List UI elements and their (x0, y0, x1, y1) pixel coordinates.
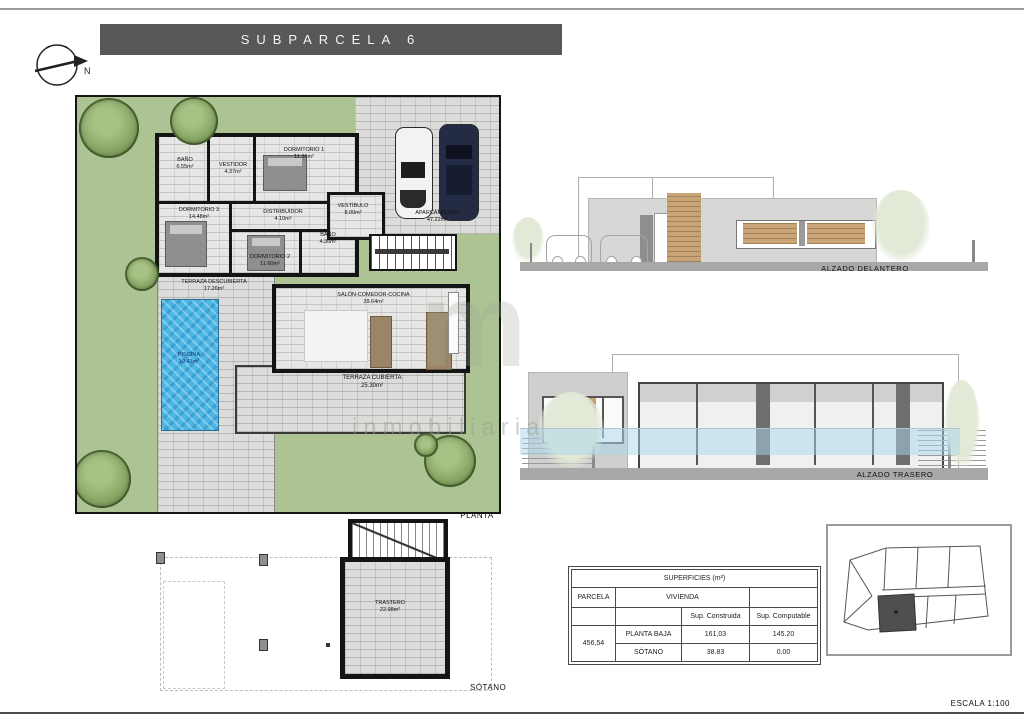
floor-plan: BAÑO 6.55m² VESTIDOR 4.37m² DORMITORIO 1… (75, 95, 501, 514)
window-band (736, 220, 876, 249)
site-plan-svg (828, 526, 1010, 654)
room-label-vestidor: VESTIDOR 4.37m² (209, 162, 257, 176)
sub-computable: Sup. Computable (750, 608, 818, 626)
boundary-post (530, 243, 532, 262)
room-label-vestibulo: VESTÍBULO 8.00m² (330, 203, 376, 217)
front-elevation: ALZADO DELANTERO (520, 165, 988, 283)
row-computable: 145.20 (750, 626, 818, 644)
column (259, 554, 268, 566)
car-roof (446, 165, 472, 195)
tree-sketch (512, 217, 544, 262)
wall (299, 229, 302, 273)
room-area: 4.37m² (209, 169, 257, 176)
row-name: PLANTA BAJA (616, 626, 682, 644)
drawing-sheet: SUBPARCELA 6 N BAÑO (0, 0, 1024, 724)
living-room-block: SALÓN-COMEDOR-COCINA 39.64m² (272, 284, 470, 373)
column (156, 552, 165, 564)
sofa (370, 316, 392, 368)
room-label-salon: SALÓN-COMEDOR-COCINA 39.64m² (306, 292, 441, 306)
scale-label: ESCALA 1:100 (925, 699, 1010, 708)
bed (165, 221, 207, 267)
stair-rail (375, 249, 449, 254)
tree (414, 433, 438, 457)
parcela-value: 456,54 (572, 626, 616, 662)
bottom-frame-line (0, 712, 1024, 714)
room-label-distribuidor: DISTRIBUIDOR 4.10m² (243, 209, 323, 223)
wall (207, 137, 210, 201)
stair (369, 234, 457, 271)
room-name: SALÓN-COMEDOR-COCINA (306, 292, 441, 299)
window-slats (743, 223, 797, 244)
room-area: 4.10m² (243, 216, 323, 223)
north-letter: N (84, 66, 91, 76)
rear-elevation: ALZADO TRASERO (520, 350, 988, 482)
boundary-post (972, 240, 975, 262)
row-construida: 38.83 (682, 644, 750, 662)
room-area: 4.36m² (301, 239, 355, 246)
col-empty (750, 588, 818, 608)
room-label-dorm3: DORMITORIO 3 14.48m² (159, 207, 239, 221)
cell-empty (616, 608, 682, 626)
window-mullion (799, 221, 805, 246)
vestibulo-room: VESTÍBULO 8.00m² (327, 192, 385, 240)
row-construida: 161,03 (682, 626, 750, 644)
room-name: BAÑO (161, 157, 209, 164)
wall (159, 201, 355, 204)
rear-elevation-label: ALZADO TRASERO (810, 470, 980, 479)
col-vivienda: VIVIENDA (616, 588, 750, 608)
cell-empty (572, 608, 616, 626)
page-title: SUBPARCELA 6 (241, 32, 422, 47)
room-name: DORMITORIO 1 (255, 147, 353, 154)
car-sketch (600, 235, 648, 263)
top-frame-line (0, 8, 1024, 10)
car-dark (439, 124, 479, 221)
room-name: DISTRIBUIDOR (243, 209, 323, 216)
column-dot (326, 643, 330, 647)
row-computable: 0.00 (750, 644, 818, 662)
window-slats (807, 223, 865, 244)
tree (170, 97, 218, 145)
basement-plan: TRASTERO 22.98m² (140, 515, 510, 705)
title-bar: SUBPARCELA 6 (100, 24, 562, 55)
tree (75, 450, 131, 508)
col-parcela: PARCELA (572, 588, 616, 608)
areas-table: SUPERFICIES (m²) PARCELA VIVIENDA Sup. C… (568, 566, 821, 665)
car-sketch (546, 235, 592, 263)
car-white (395, 127, 433, 219)
bed (247, 235, 285, 271)
room-area: 6.55m² (161, 164, 209, 171)
car-hood (400, 190, 426, 208)
pool-outline (163, 581, 225, 689)
tree-sketch (872, 190, 930, 262)
front-door (667, 193, 701, 262)
front-elevation-label: ALZADO DELANTERO (775, 264, 955, 273)
site-key-plan (826, 524, 1012, 656)
room-label-trastero: TRASTERO 22.98m² (345, 600, 435, 614)
room-area: 8.00m² (330, 210, 376, 217)
room-area: 22.98m² (345, 607, 435, 614)
pool (161, 299, 219, 431)
bed (263, 155, 307, 191)
door-jamb (654, 213, 668, 264)
room-name: TRASTERO (345, 600, 435, 607)
trastero-room: TRASTERO 22.98m² (340, 557, 450, 679)
basement-caption: SÓTANO (470, 683, 540, 692)
tree (79, 98, 139, 158)
wall (253, 137, 256, 201)
rug (304, 310, 368, 362)
glass-band (638, 382, 944, 472)
kitchen-counter (448, 292, 459, 354)
wall (229, 201, 232, 273)
sub-construida: Sup. Construida (682, 608, 750, 626)
car-windshield (401, 162, 425, 178)
room-area: 39.64m² (306, 299, 441, 306)
tree (125, 257, 159, 291)
table-title: SUPERFICIES (m²) (572, 570, 818, 588)
car-windshield (446, 145, 472, 159)
north-arrow-icon: N (30, 38, 94, 92)
room-label-bano1: BAÑO 6.55m² (161, 157, 209, 171)
room-name: VESTÍBULO (330, 203, 376, 210)
column (259, 639, 268, 651)
room-name: DORMITORIO 3 (159, 207, 239, 214)
covered-terrace-area (235, 365, 466, 434)
pool-glass-fence (520, 428, 960, 455)
room-name: VESTIDOR (209, 162, 257, 169)
row-name: SÓTANO (616, 644, 682, 662)
